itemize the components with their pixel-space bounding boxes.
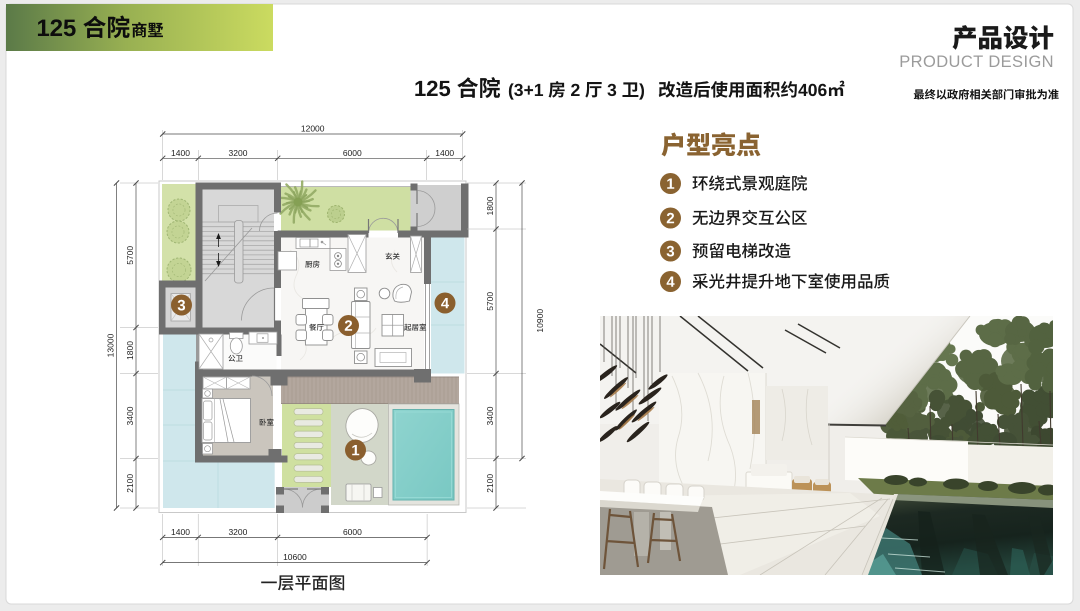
svg-text:10900: 10900 [535, 309, 545, 333]
svg-text:3400: 3400 [125, 406, 135, 425]
svg-text:5700: 5700 [485, 292, 495, 311]
svg-text:5700: 5700 [125, 246, 135, 265]
svg-text:1800: 1800 [125, 341, 135, 360]
svg-text:13000: 13000 [106, 333, 116, 357]
svg-text:1800: 1800 [485, 196, 495, 215]
svg-text:10600: 10600 [283, 552, 307, 562]
svg-text:6000: 6000 [343, 527, 362, 537]
svg-text:2100: 2100 [485, 474, 495, 493]
svg-text:12000: 12000 [301, 124, 325, 134]
svg-text:3400: 3400 [485, 406, 495, 425]
svg-text:PRODUCT DESIGN: PRODUCT DESIGN [899, 53, 1054, 71]
svg-text:3200: 3200 [229, 148, 248, 158]
svg-text:3200: 3200 [228, 527, 247, 537]
svg-text:1400: 1400 [435, 148, 454, 158]
svg-text:2100: 2100 [125, 474, 135, 493]
svg-text:6000: 6000 [343, 148, 362, 158]
svg-text:1400: 1400 [171, 148, 190, 158]
svg-text:1400: 1400 [171, 527, 190, 537]
